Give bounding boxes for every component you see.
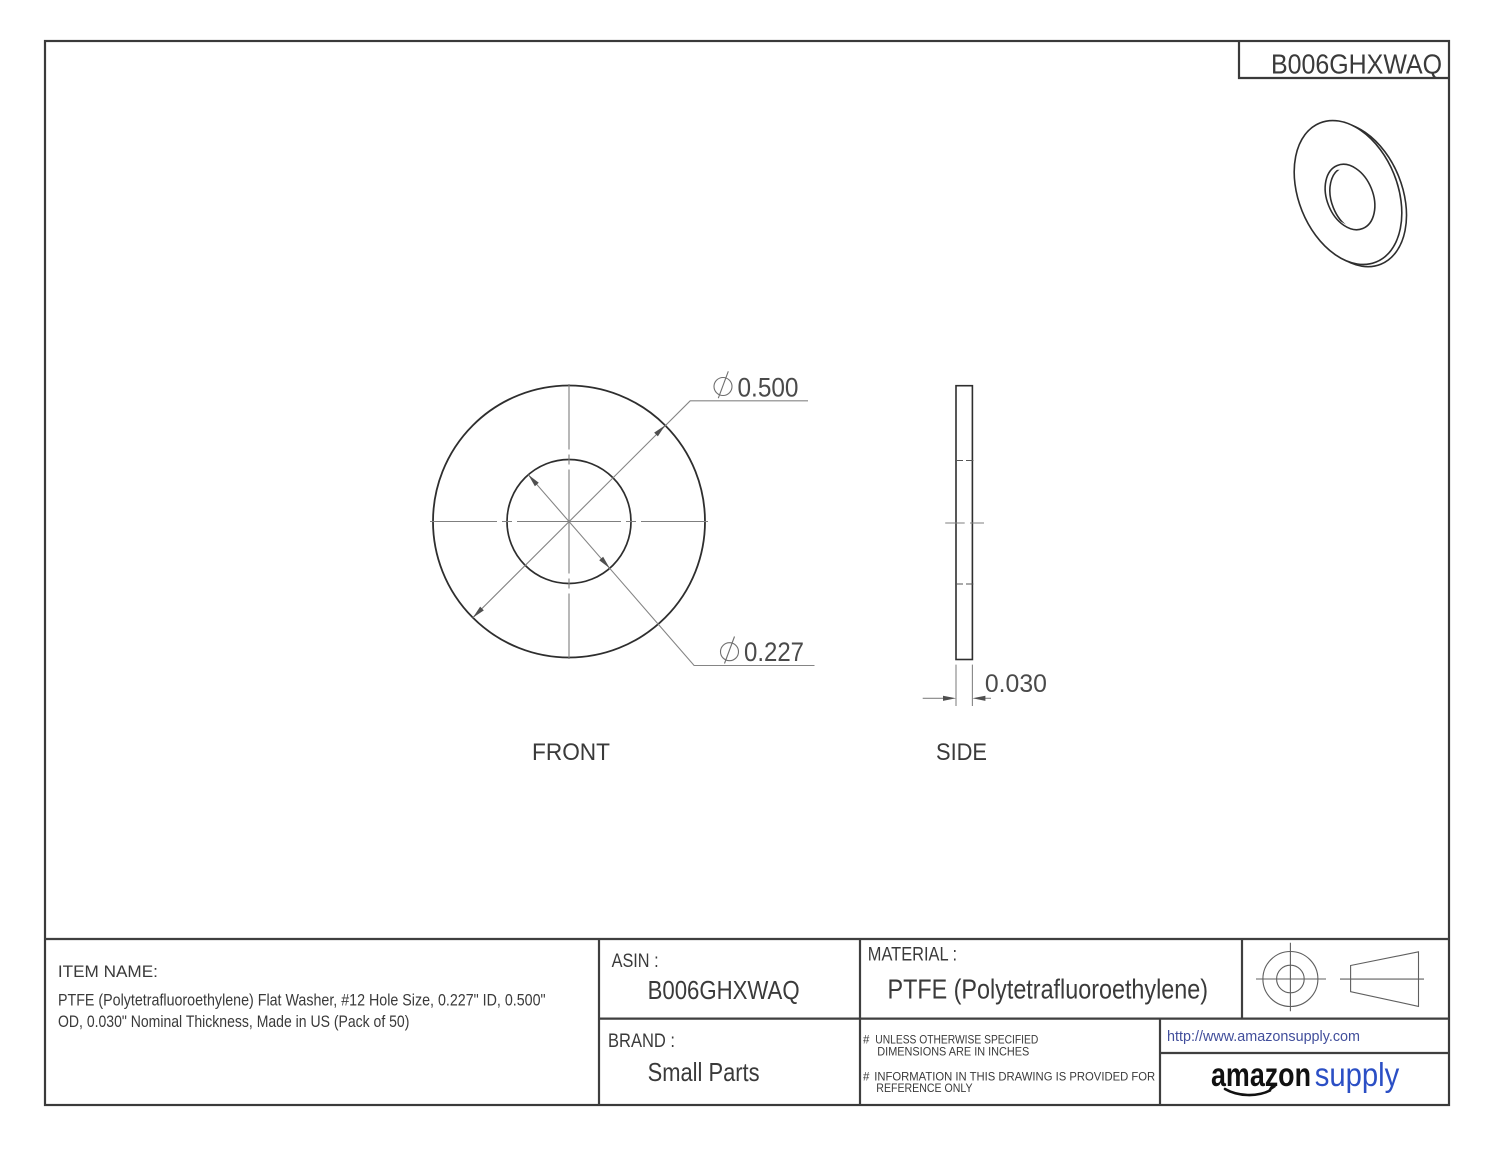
svg-text:FRONT: FRONT (532, 739, 610, 766)
svg-text:ASIN :: ASIN : (612, 951, 659, 972)
svg-text:UNLESS OTHERWISE SPECIFIED: UNLESS OTHERWISE SPECIFIED (875, 1034, 1038, 1046)
svg-text:DIMENSIONS ARE IN INCHES: DIMENSIONS ARE IN INCHES (877, 1047, 1029, 1059)
svg-text:INFORMATION IN THIS DRAWING IS: INFORMATION IN THIS DRAWING IS PROVIDED … (874, 1071, 1155, 1083)
svg-text:http://www.amazonsupply.com: http://www.amazonsupply.com (1167, 1028, 1360, 1045)
svg-text:B006GHXWAQ: B006GHXWAQ (648, 975, 800, 1005)
svg-text:Small Parts: Small Parts (648, 1057, 760, 1087)
svg-text:0.030: 0.030 (985, 670, 1047, 698)
svg-text:#: # (863, 1071, 870, 1083)
svg-text:ITEM NAME:: ITEM NAME: (58, 962, 158, 981)
svg-text:PTFE (Polytetrafluoroethylene): PTFE (Polytetrafluoroethylene) Flat Wash… (58, 991, 546, 1009)
svg-text:supply: supply (1315, 1056, 1400, 1093)
svg-text:0.227: 0.227 (744, 637, 804, 667)
svg-text:REFERENCE ONLY: REFERENCE ONLY (876, 1083, 973, 1095)
svg-text:0.500: 0.500 (738, 373, 799, 403)
svg-text:#: # (863, 1034, 870, 1046)
svg-text:amazon: amazon (1211, 1056, 1311, 1093)
svg-text:SIDE: SIDE (936, 739, 987, 766)
svg-text:OD, 0.030" Nominal Thickness,: OD, 0.030" Nominal Thickness, Made in US… (58, 1013, 409, 1031)
svg-text:PTFE (Polytetrafluoroethylene): PTFE (Polytetrafluoroethylene) (888, 973, 1209, 1004)
svg-text:BRAND :: BRAND : (608, 1031, 675, 1052)
svg-text:B006GHXWAQ: B006GHXWAQ (1271, 49, 1442, 80)
svg-text:MATERIAL :: MATERIAL : (868, 944, 957, 965)
